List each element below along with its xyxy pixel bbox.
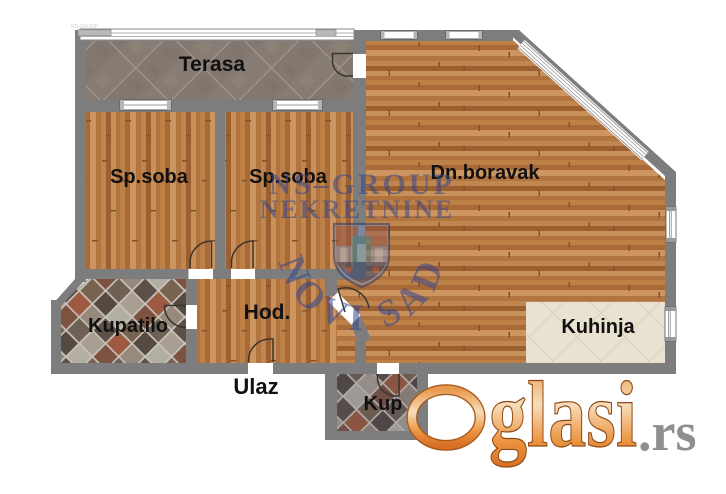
svg-text:.rs: .rs: [638, 402, 696, 462]
svg-text:Sp.soba: Sp.soba: [110, 166, 189, 188]
svg-text:NEKRETNINE: NEKRETNINE: [260, 195, 455, 224]
svg-text:Terasa: Terasa: [179, 53, 245, 76]
svg-text:Kup: Kup: [364, 393, 403, 415]
svg-text:Kuhinja: Kuhinja: [561, 316, 635, 338]
svg-text:glasi: glasi: [489, 363, 637, 467]
svg-text:Kupatilo: Kupatilo: [88, 315, 168, 337]
svg-text:Hod.: Hod.: [244, 301, 291, 324]
svg-text:Ulaz: Ulaz: [233, 374, 278, 399]
